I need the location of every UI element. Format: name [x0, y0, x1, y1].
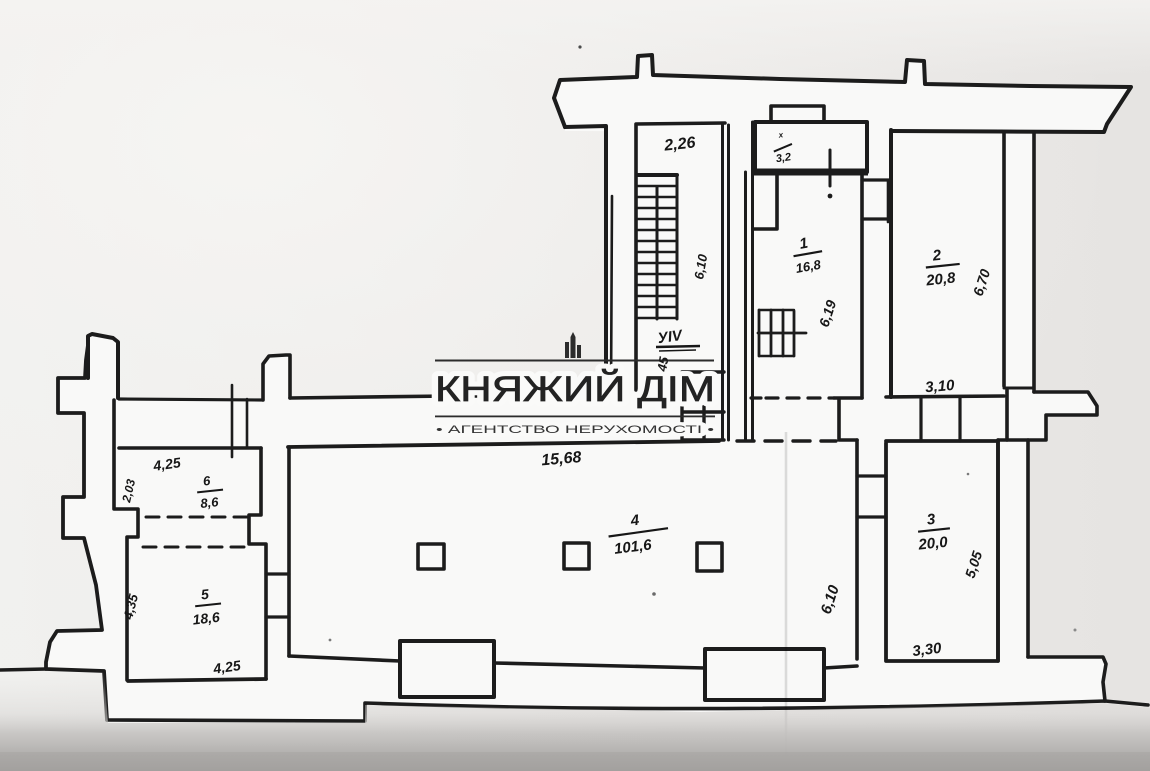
svg-text:3,30: 3,30: [911, 640, 943, 661]
svg-text:3,2: 3,2: [775, 151, 792, 165]
svg-text:УІV: УІV: [657, 327, 685, 347]
svg-text:2,26: 2,26: [662, 134, 696, 154]
svg-text:18,6: 18,6: [192, 609, 221, 628]
svg-text:3,10: 3,10: [925, 377, 956, 397]
svg-text:20,0: 20,0: [917, 534, 949, 554]
svg-text:8,6: 8,6: [200, 494, 220, 511]
svg-text:15,68: 15,68: [541, 449, 582, 469]
svg-text:• АГЕНТСТВО НЕРУХОМОСТІ •: • АГЕНТСТВО НЕРУХОМОСТІ •: [436, 424, 714, 436]
svg-text:КНЯЖИЙ ДІМ: КНЯЖИЙ ДІМ: [435, 369, 715, 409]
svg-text:20,8: 20,8: [924, 269, 956, 289]
